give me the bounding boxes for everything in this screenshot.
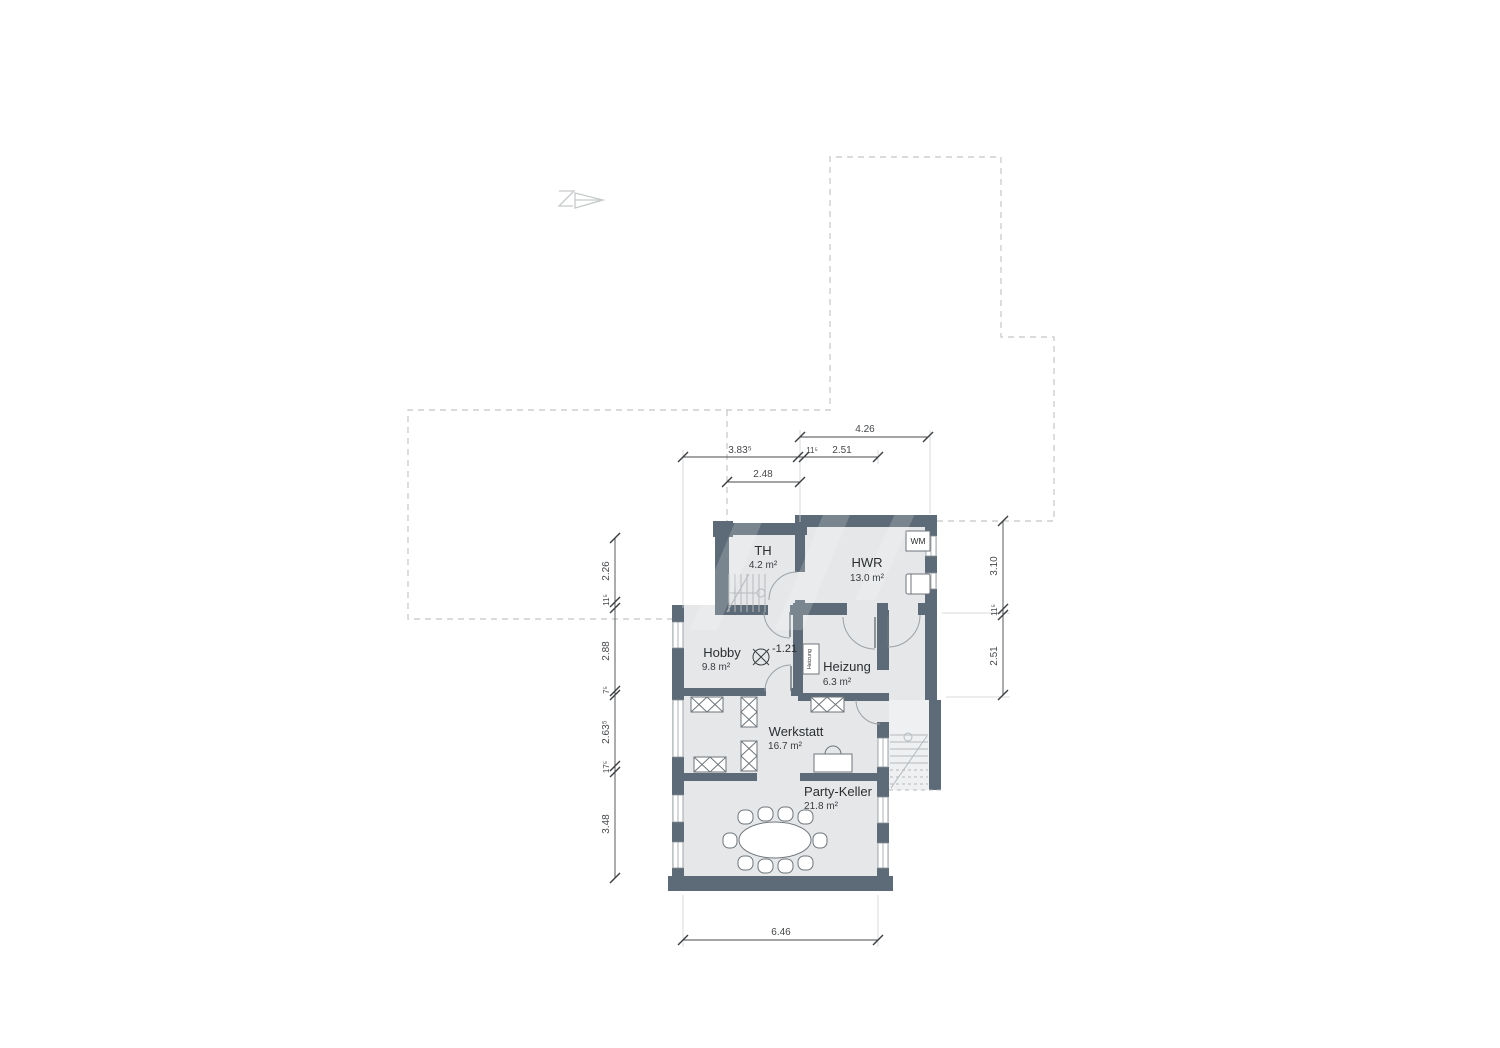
appliance [906,574,930,594]
dim-left-1: 2.26 [601,561,612,581]
dim-top-5: 2.48 [753,469,773,480]
cabinet [694,757,726,772]
cabinet [741,697,757,727]
dim-top-3: 11⁵ [806,446,818,455]
room-area-hwr: 13.0 m² [850,573,885,584]
room-name-party: Party-Keller [804,784,873,799]
dim-left-3: 2.88 [601,641,612,661]
dim-right-2: 11⁵ [990,604,999,616]
room-name-th: TH [754,543,771,558]
cabinet [691,697,723,712]
room-area-party: 21.8 m² [804,801,839,812]
cabinet [811,697,844,712]
dim-left-6: 17⁵ [602,761,611,773]
dim-left-4: 7⁵ [602,686,611,694]
room-name-werkstatt: Werkstatt [769,724,824,739]
room-area-th: 4.2 m² [749,560,778,571]
dim-bottom-1: 6.46 [771,927,791,938]
floor-plan-drawing: -1.21 TH 4.2 m² HWR 13.0 m² Hobby 9.8 m²… [0,0,1500,1048]
room-name-hobby: Hobby [703,645,741,660]
dim-left-2: 11⁵ [602,594,611,606]
dim-left-5: 2.63⁵ [601,720,612,744]
dining-table [739,822,811,858]
level-value: -1.21 [772,643,797,655]
room-name-hwr: HWR [851,555,882,570]
room-area-heizung: 6.3 m² [823,677,852,688]
cabinet [741,741,757,771]
dim-left-7: 3.48 [601,814,612,834]
dim-top-4: 2.51 [832,445,852,456]
dim-top-2: 3.83⁵ [728,445,752,456]
room-area-werkstatt: 16.7 m² [768,741,803,752]
dim-top-1: 4.26 [855,424,875,435]
desk [814,754,852,772]
dim-right-1: 3.10 [989,556,1000,576]
washing-machine-label: WM [910,536,925,546]
room-area-hobby: 9.8 m² [702,662,731,673]
room-name-heizung: Heizung [823,659,871,674]
north-arrow-icon [559,191,603,208]
boiler-label: Heizung [807,649,813,669]
floor-plan-page: -1.21 TH 4.2 m² HWR 13.0 m² Hobby 9.8 m²… [0,0,1500,1048]
dim-right-3: 2.51 [989,646,1000,666]
